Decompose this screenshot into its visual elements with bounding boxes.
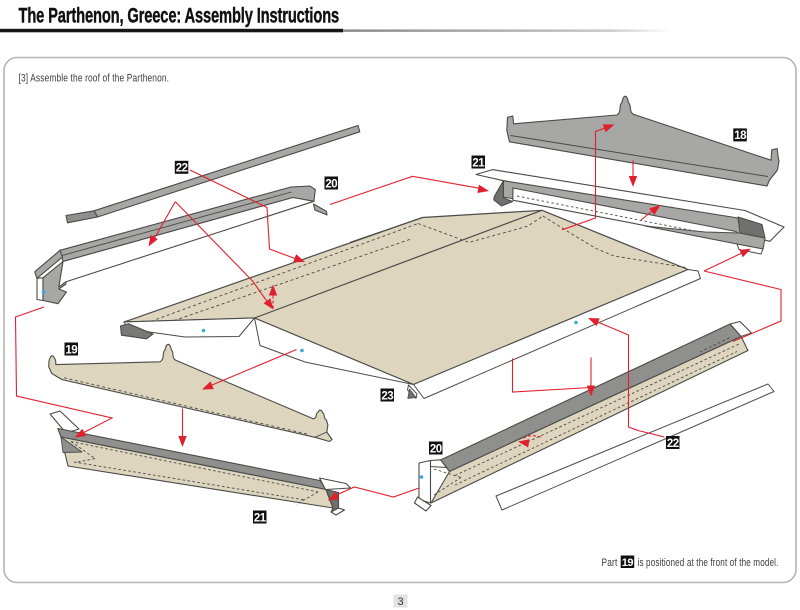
- svg-text:22: 22: [667, 438, 679, 450]
- svg-text:21: 21: [472, 157, 485, 169]
- svg-text:is positioned at the front of: is positioned at the front of the model.: [638, 557, 779, 570]
- svg-text:20: 20: [325, 178, 337, 190]
- svg-text:3: 3: [397, 596, 403, 608]
- svg-text:[3] Assemble the roof of the P: [3] Assemble the roof of the Parthenon.: [19, 72, 170, 84]
- svg-text:The Parthenon, Greece: Assembl: The Parthenon, Greece: Assembly Instruct…: [19, 4, 340, 27]
- svg-text:23: 23: [381, 390, 393, 402]
- svg-text:19: 19: [622, 557, 634, 569]
- svg-text:18: 18: [734, 130, 747, 142]
- svg-text:19: 19: [65, 344, 77, 356]
- svg-text:21: 21: [254, 512, 267, 524]
- svg-text:22: 22: [176, 163, 188, 175]
- svg-text:20: 20: [430, 443, 442, 455]
- svg-text:Part: Part: [602, 557, 618, 569]
